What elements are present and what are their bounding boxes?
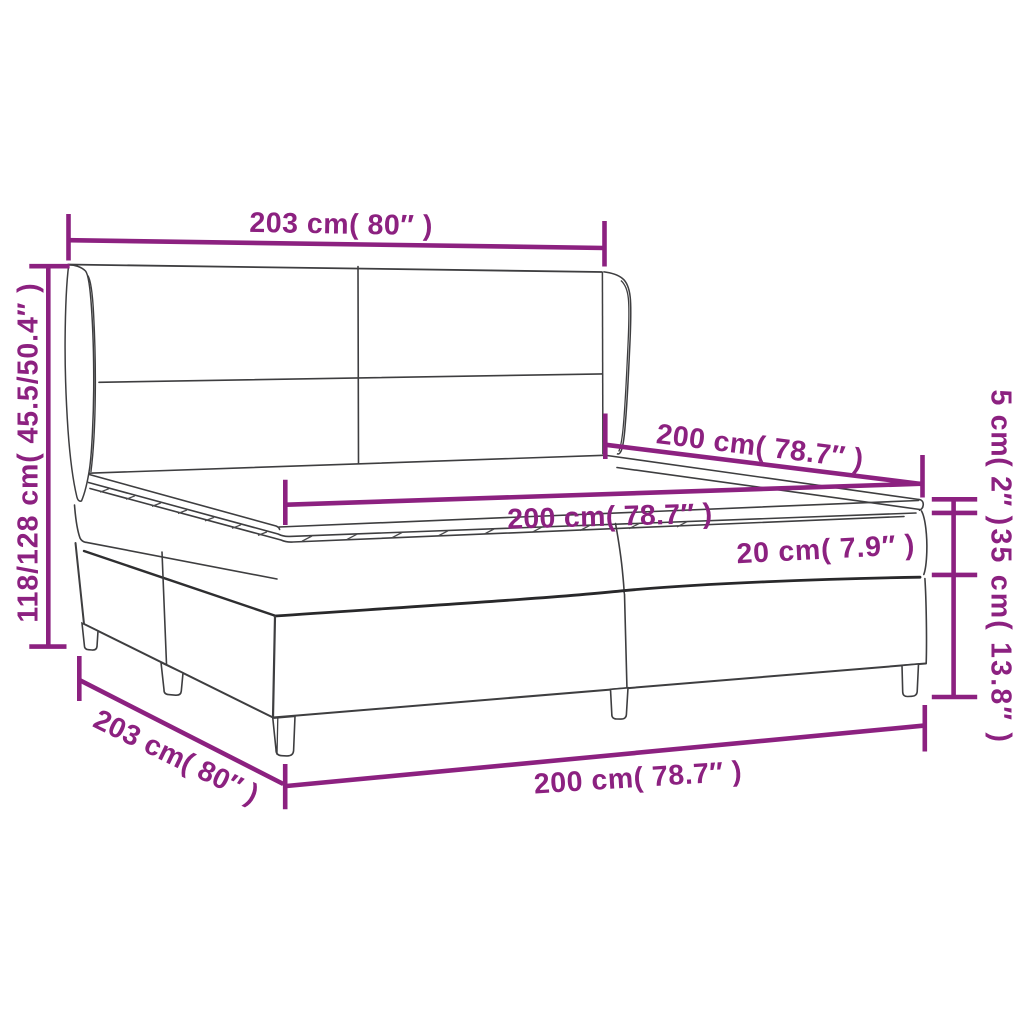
svg-text:200 cm( 78.7″ ): 200 cm( 78.7″ ) <box>507 498 713 536</box>
svg-text:35 cm( 13.8″ ): 35 cm( 13.8″ ) <box>985 529 1017 745</box>
svg-text:5 cm( 2″ ): 5 cm( 2″ ) <box>985 390 1017 526</box>
svg-text:203 cm( 80″ ): 203 cm( 80″ ) <box>249 207 433 242</box>
svg-text:118/128 cm( 45.5/50.4″ ): 118/128 cm( 45.5/50.4″ ) <box>13 282 45 622</box>
